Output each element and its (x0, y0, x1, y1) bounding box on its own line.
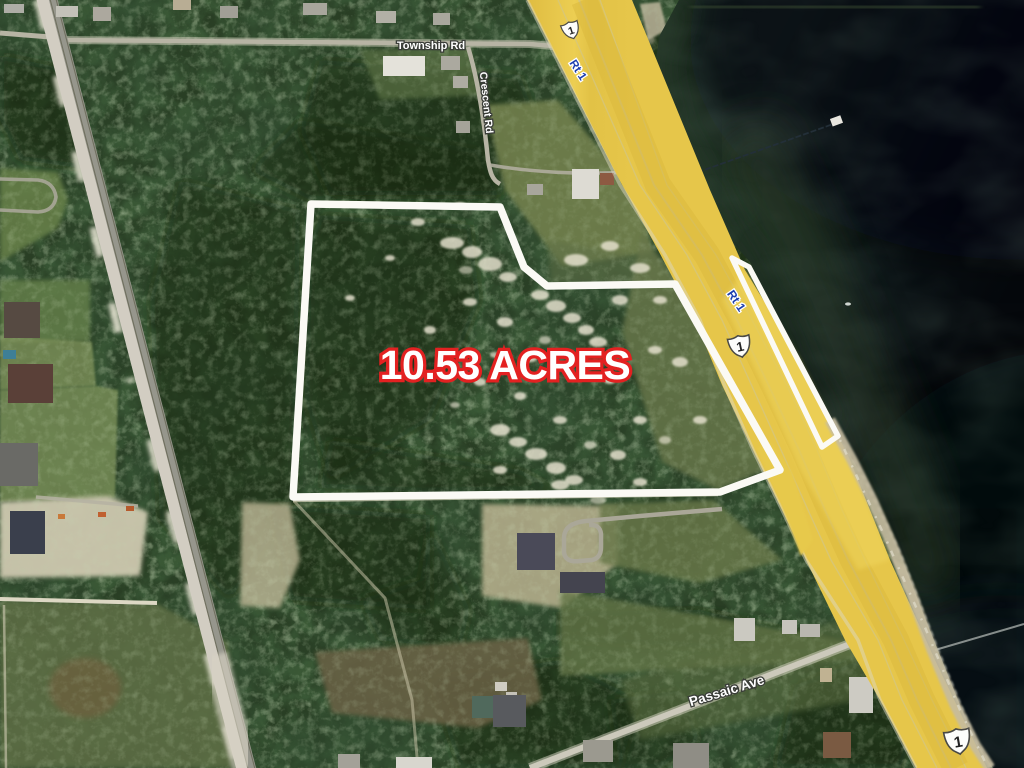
svg-text:10.53 ACRES: 10.53 ACRES (380, 342, 631, 388)
svg-text:Township Rd: Township Rd (397, 40, 465, 52)
